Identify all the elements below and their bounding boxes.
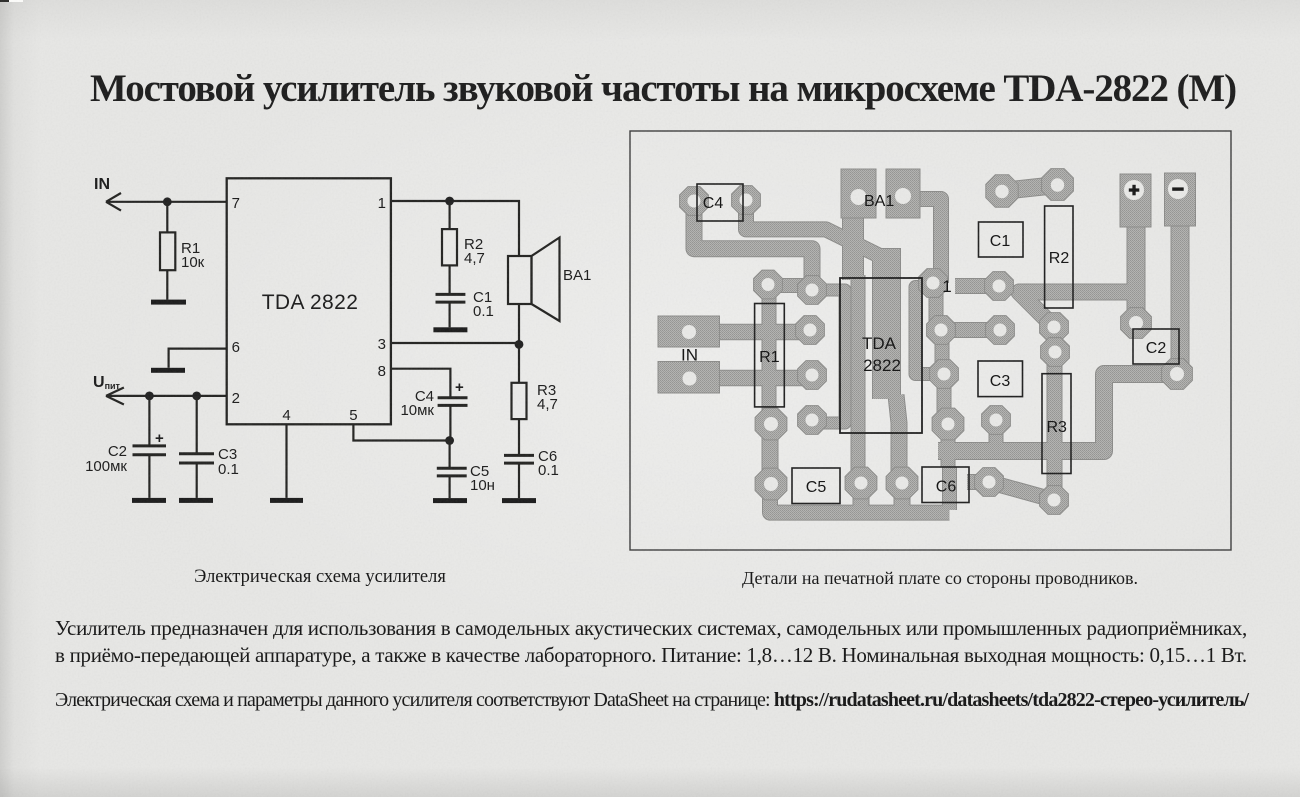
svg-text:C1: C1 (990, 233, 1011, 250)
svg-text:+: + (155, 430, 164, 447)
svg-text:+: + (455, 379, 464, 396)
svg-text:6: 6 (232, 339, 240, 356)
svg-text:C3: C3 (990, 373, 1011, 390)
svg-text:4,7: 4,7 (537, 396, 558, 413)
svg-text:R3: R3 (1046, 419, 1067, 436)
svg-text:5: 5 (349, 407, 357, 424)
svg-text:10мк: 10мк (400, 402, 434, 419)
svg-text:100мк: 100мк (85, 458, 127, 475)
svg-text:2822: 2822 (863, 356, 901, 375)
svg-text:R2: R2 (1049, 250, 1070, 267)
svg-text:1: 1 (378, 195, 386, 212)
svg-text:0.1: 0.1 (473, 303, 494, 320)
svg-text:BA1: BA1 (864, 193, 894, 210)
svg-text:7: 7 (232, 195, 240, 212)
svg-text:TDA: TDA (862, 334, 897, 353)
svg-text:2: 2 (232, 390, 240, 407)
svg-text:C4: C4 (703, 195, 724, 212)
svg-text:C6: C6 (936, 479, 957, 496)
svg-text:IN: IN (94, 176, 110, 193)
svg-text:BA1: BA1 (563, 267, 591, 284)
svg-text:TDA 2822: TDA 2822 (262, 291, 359, 314)
svg-text:0.1: 0.1 (218, 461, 239, 478)
svg-text:8: 8 (378, 363, 386, 380)
svg-text:10к: 10к (181, 254, 205, 271)
svg-text:4,7: 4,7 (464, 250, 485, 267)
svg-text:0.1: 0.1 (538, 462, 559, 479)
svg-text:Uпит: Uпит (93, 374, 121, 391)
svg-text:1: 1 (942, 277, 951, 296)
svg-text:3: 3 (378, 336, 386, 353)
svg-text:10н: 10н (470, 477, 495, 494)
svg-text:4: 4 (282, 407, 290, 424)
svg-text:IN: IN (681, 346, 698, 365)
svg-text:C5: C5 (806, 479, 827, 496)
svg-text:C2: C2 (1146, 340, 1167, 357)
svg-text:R1: R1 (759, 349, 780, 366)
